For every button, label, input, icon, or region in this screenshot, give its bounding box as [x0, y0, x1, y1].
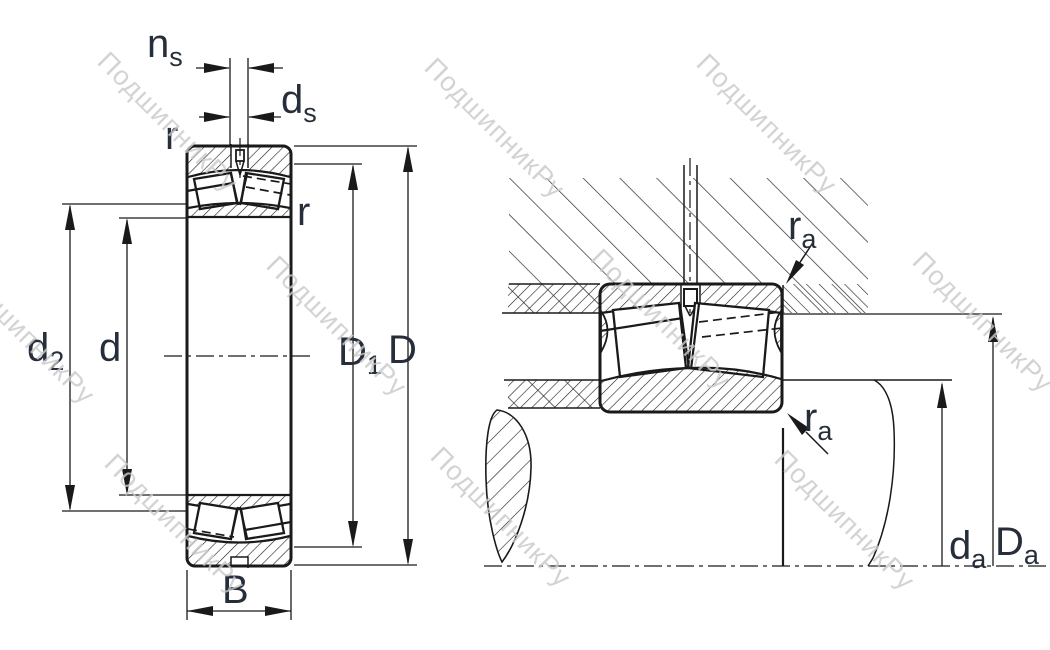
- label-r-top-left: r: [165, 116, 178, 156]
- shaft-break-line: [868, 380, 894, 566]
- label-r-right: r: [297, 192, 310, 232]
- label-d: d: [99, 328, 121, 368]
- right-mounting-section: [484, 158, 1046, 566]
- roller: [613, 303, 686, 377]
- label-Da: Da: [995, 522, 1039, 569]
- roller: [241, 503, 284, 539]
- housing-shoulder: [783, 284, 868, 313]
- shaft-broken-section: [486, 410, 531, 562]
- label-ra-upper: ra: [788, 206, 816, 253]
- label-ns: ns: [147, 24, 183, 71]
- left-bearing-section: [164, 138, 313, 568]
- roller: [194, 503, 237, 539]
- label-B: B: [222, 570, 249, 610]
- label-ra-lower: ra: [804, 398, 832, 445]
- label-D1: D1: [338, 332, 382, 379]
- label-d2: d2: [27, 328, 64, 375]
- label-da: da: [949, 526, 986, 573]
- technical-drawing-page: ns ds r r d2 d D1 D B ra ra da Da Подшип…: [0, 0, 1050, 650]
- label-ds: ds: [281, 80, 317, 127]
- bearing-technical-drawing: [0, 0, 1050, 650]
- label-D: D: [388, 330, 417, 370]
